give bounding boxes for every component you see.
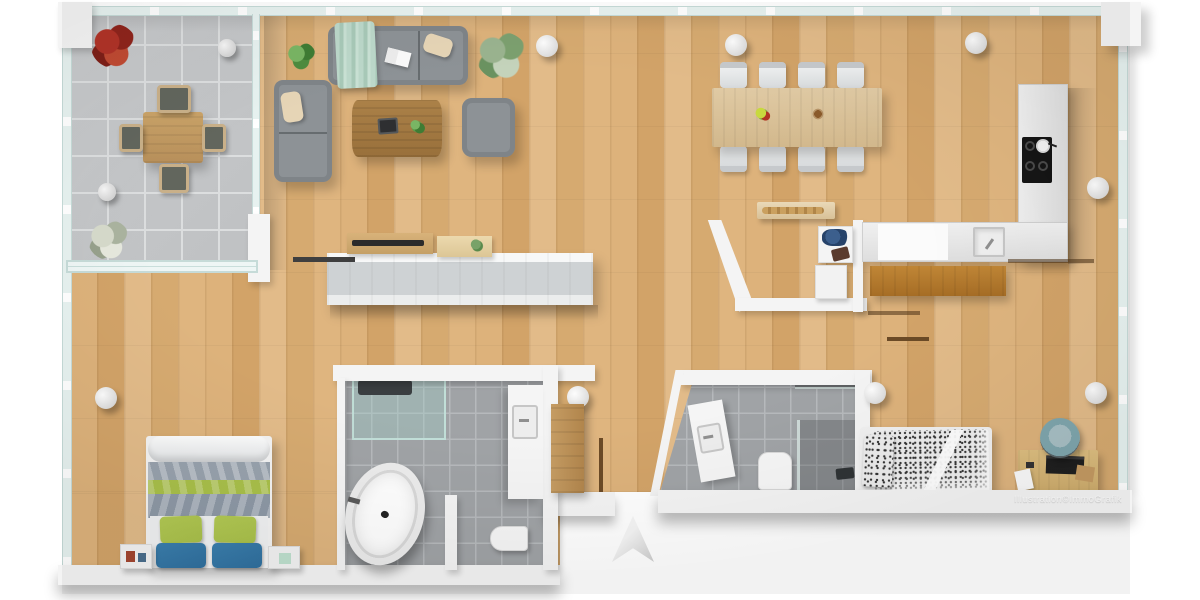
bed-pillow — [862, 434, 895, 487]
dining-chair — [837, 62, 864, 88]
pillow-green — [214, 515, 257, 543]
desk-item — [1075, 465, 1095, 483]
glass-wall-right — [1118, 44, 1128, 492]
frying-pan — [1036, 139, 1050, 153]
bathroom1-wall-left — [337, 378, 345, 570]
phone — [1026, 462, 1034, 468]
dining-chair — [720, 62, 747, 88]
pillow-green — [160, 515, 203, 543]
burner — [1025, 161, 1035, 171]
potted-plant-small — [286, 42, 316, 71]
double-bed — [146, 436, 272, 568]
tub-drain — [380, 510, 390, 519]
dining-table — [712, 88, 882, 147]
lowboard-shadow — [330, 305, 598, 320]
pillow-blue — [212, 543, 262, 568]
laundry-basket — [831, 246, 850, 262]
faucet — [985, 238, 994, 250]
lowboard — [327, 253, 593, 305]
baguette — [762, 207, 824, 214]
office-chair — [1040, 418, 1080, 458]
table-decoration — [810, 107, 826, 121]
kitchen-counter-shadow — [1068, 88, 1098, 264]
soundbar — [352, 240, 424, 246]
tablet — [377, 117, 398, 134]
corner-pillar-top-right — [1101, 2, 1141, 46]
north-arrow-icon — [612, 516, 654, 562]
duvet-roll — [148, 436, 270, 462]
lowboard-rail — [293, 257, 355, 262]
terrace-stool — [218, 39, 236, 57]
duvet-gray — [148, 462, 270, 480]
dining-chair — [759, 146, 786, 172]
red-plant — [91, 24, 137, 68]
watermark: Illustration©ImmoGrafik — [1014, 494, 1122, 504]
pantry-wall-bottom — [735, 298, 867, 311]
wc-partition-wall — [445, 495, 457, 570]
hall-wardrobe — [551, 404, 584, 493]
kitchen-bench — [870, 266, 1006, 296]
terrace-chair — [159, 164, 189, 193]
terrace-chair — [157, 85, 191, 113]
nightstand-decor — [126, 551, 135, 562]
glass-wall-left — [62, 6, 72, 566]
exterior-wall-bottom-right: Illustration©ImmoGrafik — [658, 490, 1132, 513]
faucet — [519, 419, 529, 422]
shower-fixture — [358, 380, 412, 395]
terrace-chair — [202, 124, 226, 152]
nightstand-decor — [279, 553, 291, 564]
dryer — [815, 265, 847, 299]
terrace-glass-partition — [252, 14, 260, 216]
wall-sideboard — [757, 202, 835, 219]
dining-chair — [837, 146, 864, 172]
shower-glass-panel — [797, 420, 800, 492]
table-plant — [408, 118, 426, 135]
toilet — [758, 452, 792, 490]
pillow-blue — [156, 543, 206, 568]
lowboard-tray — [347, 233, 433, 254]
support-column — [1087, 177, 1109, 199]
support-column — [864, 382, 886, 404]
dining-chair — [798, 62, 825, 88]
support-column — [95, 387, 117, 409]
top-wall-shadow — [70, 16, 1120, 32]
decor-plant — [469, 238, 486, 254]
fruit-bowl — [754, 107, 772, 122]
glass-wall-top — [62, 6, 1120, 16]
terrace-table — [143, 112, 203, 163]
cooktop — [1022, 137, 1052, 183]
decor-board — [437, 236, 492, 257]
support-column — [536, 35, 558, 57]
mint-throw-blanket — [334, 21, 377, 89]
terrace-stool — [98, 183, 116, 201]
open-door-leaf — [887, 337, 929, 341]
dining-chair — [720, 146, 747, 172]
terrace-sliding-door — [66, 260, 258, 273]
nightstand — [120, 544, 152, 569]
nightstand-decor — [138, 553, 146, 562]
burner — [1025, 141, 1035, 151]
vanity-sink — [512, 405, 538, 439]
bathroom2-shower-floor — [800, 420, 856, 492]
laundry-pile — [822, 229, 849, 246]
duvet-green-stripe — [148, 480, 270, 494]
toilet — [490, 526, 528, 551]
bathroom2-wall-top — [680, 370, 872, 385]
armchair — [462, 98, 515, 157]
terrace-chair — [119, 124, 143, 152]
burner — [1038, 161, 1048, 171]
shelf-edge — [1008, 259, 1094, 263]
shower-fixture — [835, 467, 854, 480]
kitchen-sink — [973, 227, 1005, 257]
open-door-leaf — [599, 438, 603, 492]
corner-pillar-top-left — [58, 2, 92, 48]
dining-chair — [759, 62, 786, 88]
single-bed — [860, 427, 992, 497]
dining-chair — [798, 146, 825, 172]
support-column — [965, 32, 987, 54]
nightstand — [268, 546, 300, 569]
shelf-edge — [868, 311, 920, 315]
support-column — [725, 34, 747, 56]
kitchen-cabinet-front — [878, 224, 948, 260]
pale-plant — [88, 220, 130, 260]
washing-machine — [818, 226, 853, 263]
bathroom1-vanity — [508, 385, 543, 499]
potted-plant-large — [476, 32, 528, 80]
duvet-gray — [148, 494, 270, 518]
support-column — [1085, 382, 1107, 404]
